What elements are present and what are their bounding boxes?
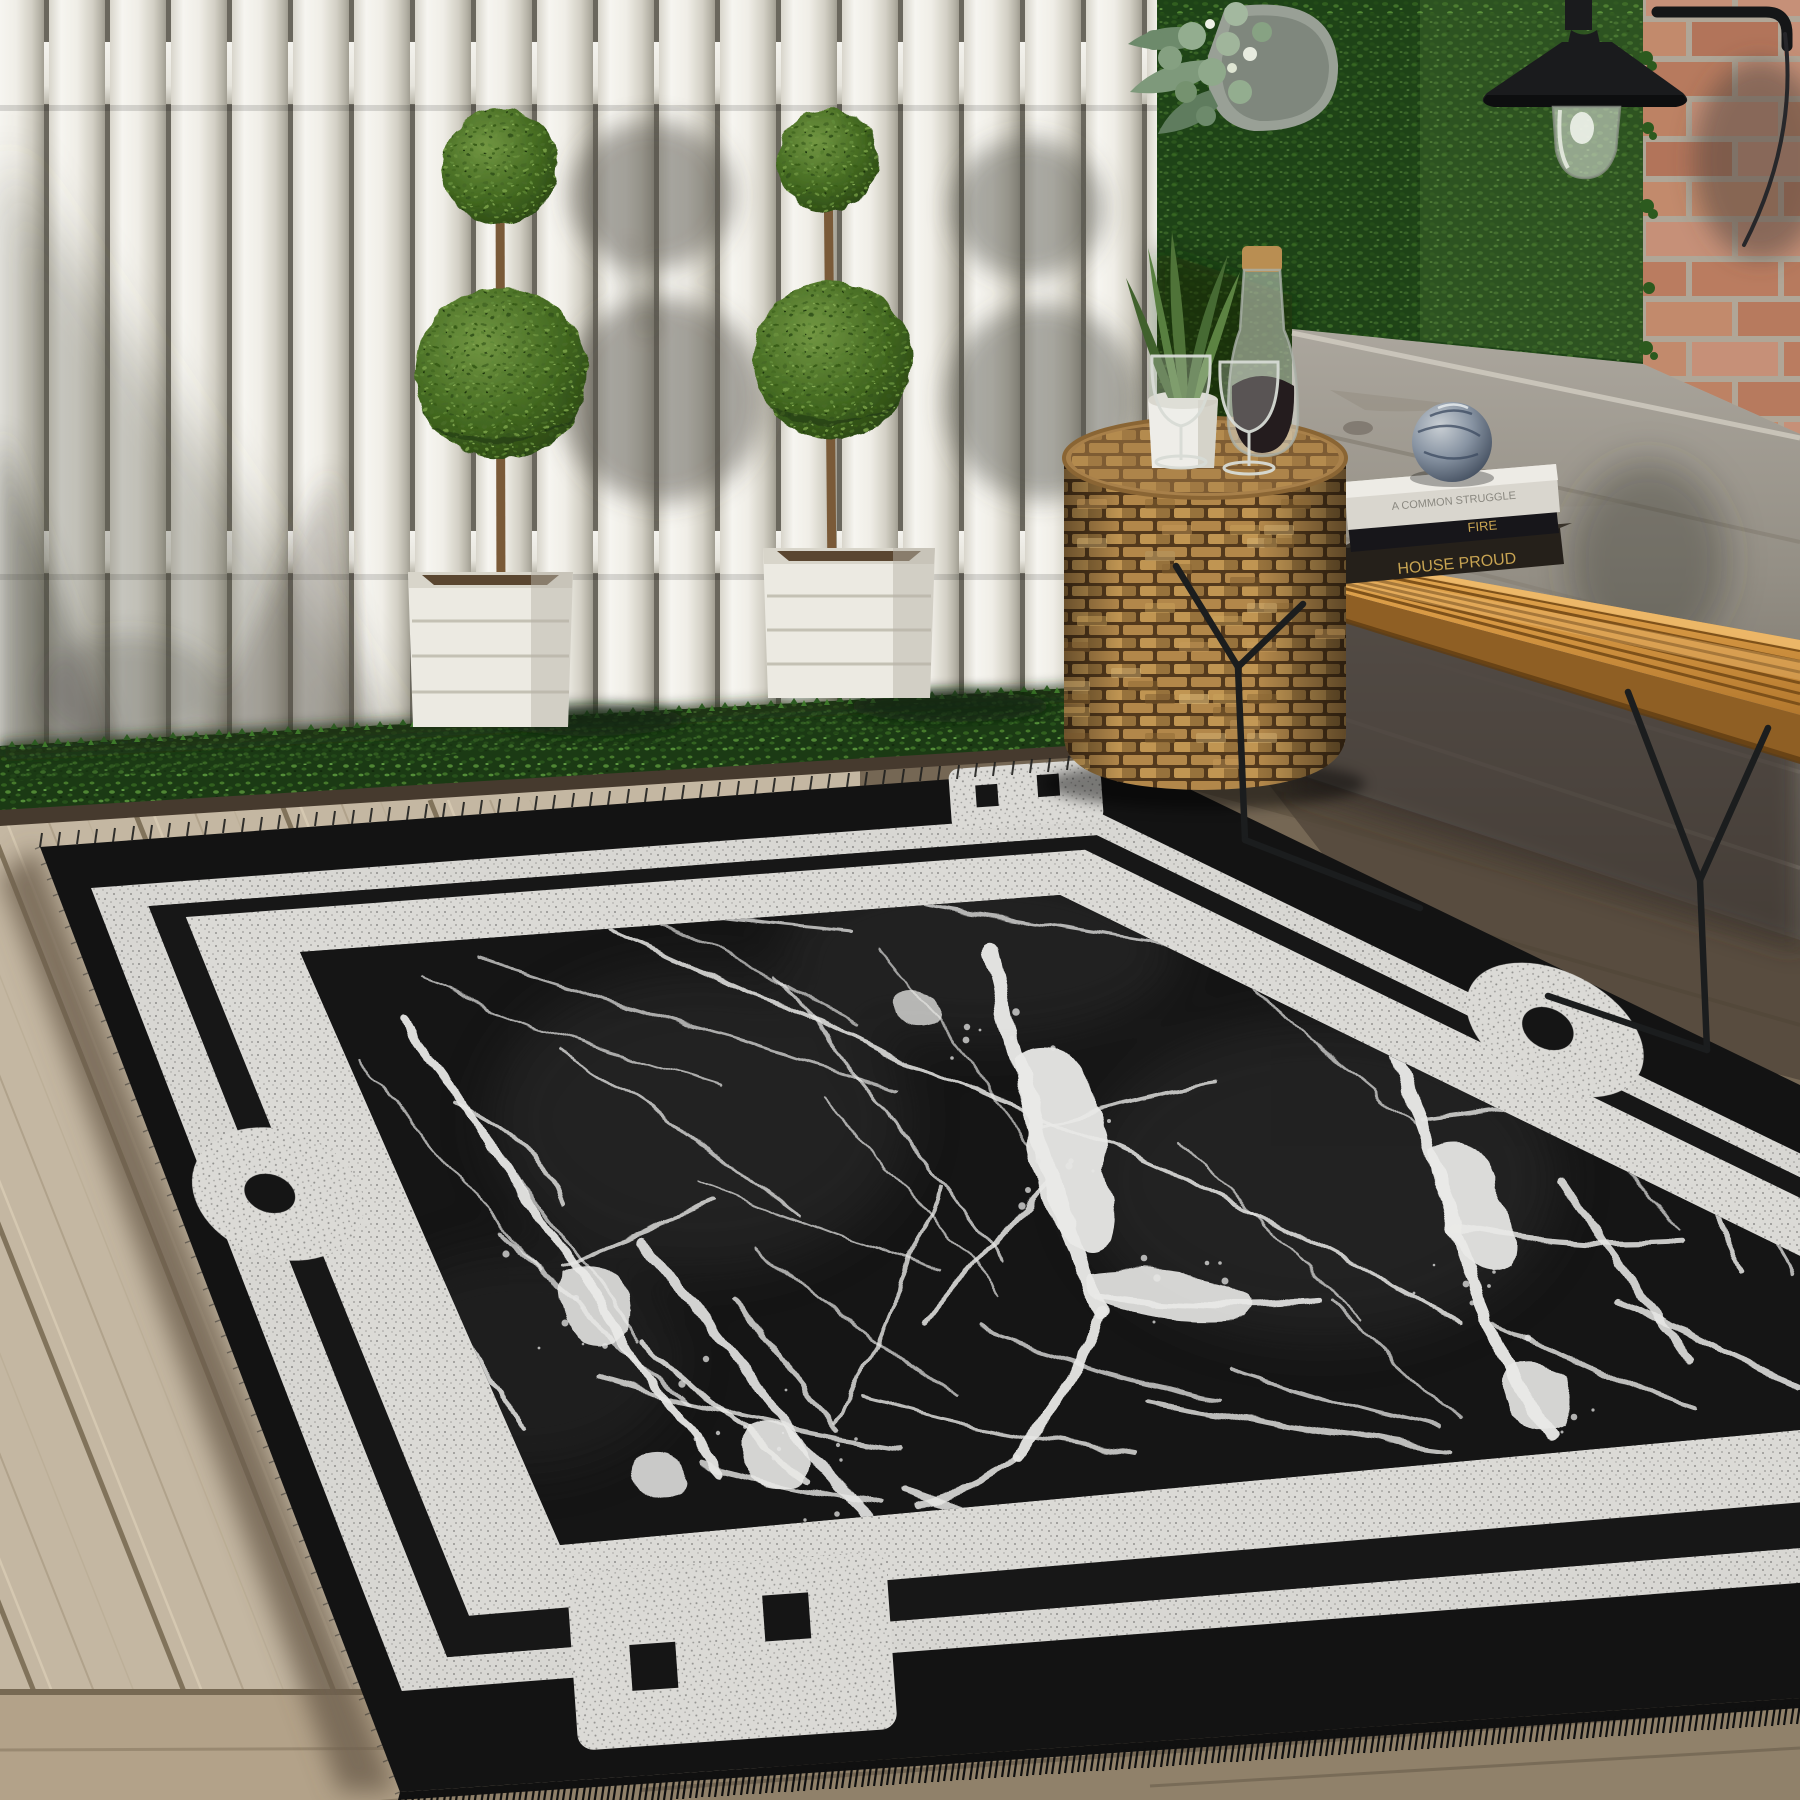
svg-text:FIRE: FIRE	[1467, 517, 1498, 535]
